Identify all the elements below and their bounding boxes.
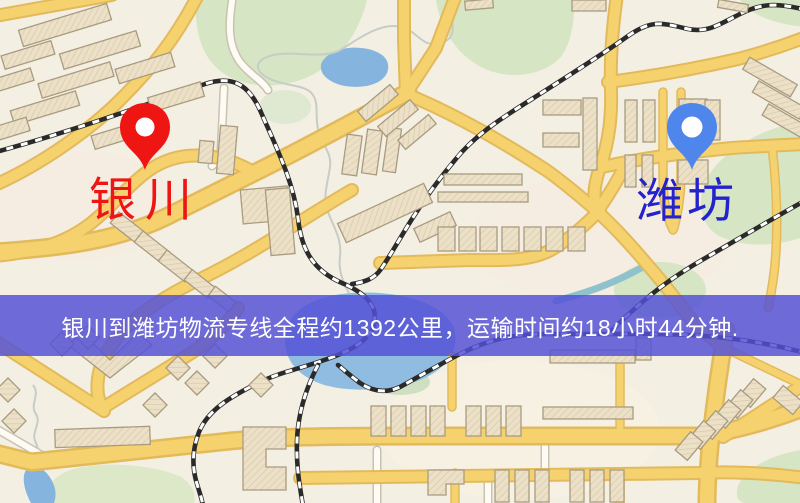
route-info-text: 银川到潍坊物流专线全程约1392公里，运输时间约18小时44分钟. (61, 309, 738, 343)
route-info-banner: 银川到潍坊物流专线全程约1392公里，运输时间约18小时44分钟. (0, 295, 800, 356)
origin-city-label: 银川 (89, 178, 201, 225)
destination-city-label: 潍坊 (636, 179, 738, 226)
map-background (0, 0, 800, 503)
route-map: 银川 潍坊 银川到潍坊物流专线全程约1392公里，运输时间约18小时44分钟. (0, 0, 800, 503)
